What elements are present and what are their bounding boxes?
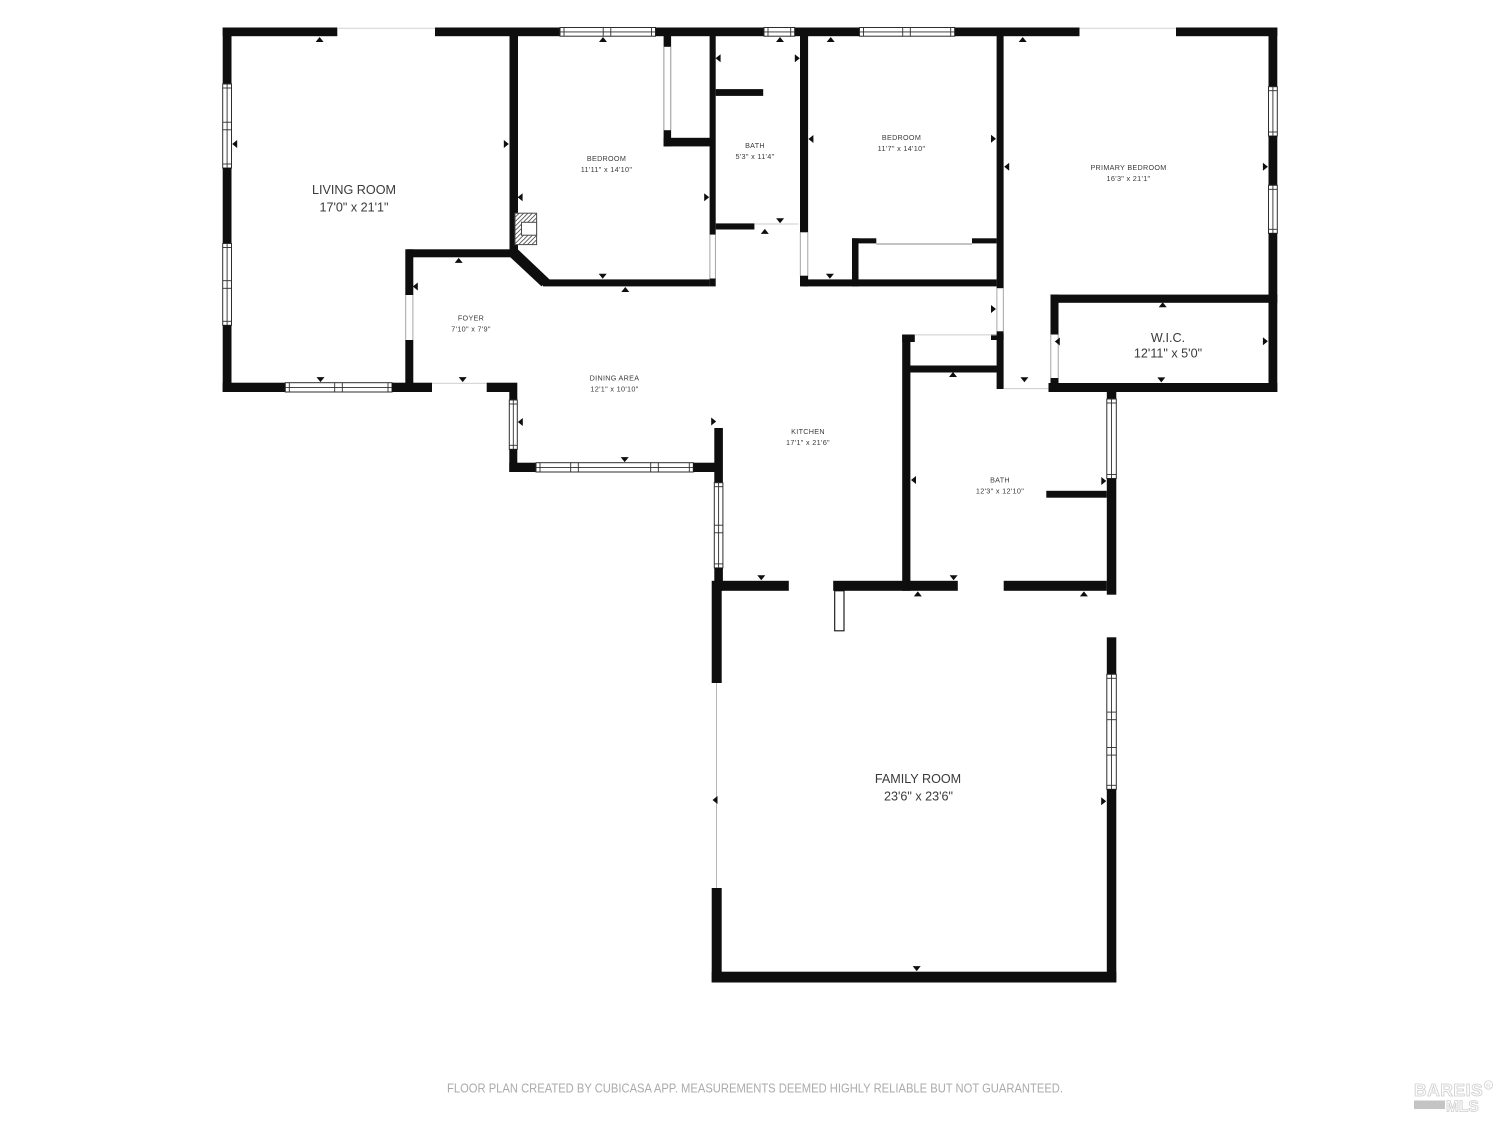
svg-text:FLOOR PLAN CREATED BY CUBICASA: FLOOR PLAN CREATED BY CUBICASA APP. MEAS… (447, 1082, 1063, 1096)
svg-text:BEDROOM: BEDROOM (882, 133, 921, 142)
svg-text:W.I.C.: W.I.C. (1151, 331, 1185, 345)
svg-text:11'7" x 14'10": 11'7" x 14'10" (878, 144, 926, 153)
svg-text:BATH: BATH (745, 141, 765, 150)
svg-text:12'1" x 10'10": 12'1" x 10'10" (590, 385, 638, 394)
svg-text:23'6" x 23'6": 23'6" x 23'6" (884, 790, 953, 804)
svg-text:12'11" x 5'0": 12'11" x 5'0" (1134, 347, 1202, 361)
svg-text:5'3" x 11'4": 5'3" x 11'4" (735, 152, 774, 161)
svg-text:LIVING ROOM: LIVING ROOM (312, 183, 396, 197)
svg-text:MLS: MLS (1446, 1099, 1479, 1116)
svg-text:16'3" x 21'1": 16'3" x 21'1" (1107, 174, 1151, 183)
svg-text:R: R (1486, 1083, 1491, 1090)
svg-text:7'10" x 7'9": 7'10" x 7'9" (451, 325, 491, 334)
svg-text:FOYER: FOYER (458, 314, 484, 323)
svg-text:BEDROOM: BEDROOM (587, 154, 626, 163)
svg-text:BATH: BATH (990, 476, 1010, 485)
svg-text:FAMILY ROOM: FAMILY ROOM (875, 772, 961, 786)
svg-text:PRIMARY BEDROOM: PRIMARY BEDROOM (1090, 163, 1166, 172)
svg-text:17'0" x 21'1": 17'0" x 21'1" (319, 201, 388, 215)
svg-text:17'1" x 21'6": 17'1" x 21'6" (786, 438, 830, 447)
svg-text:DINING AREA: DINING AREA (590, 374, 640, 383)
svg-text:12'3" x 12'10": 12'3" x 12'10" (976, 487, 1024, 496)
svg-text:BAREIS: BAREIS (1414, 1080, 1483, 1100)
svg-text:11'11" x 14'10": 11'11" x 14'10" (581, 165, 633, 174)
svg-text:KITCHEN: KITCHEN (791, 427, 825, 436)
